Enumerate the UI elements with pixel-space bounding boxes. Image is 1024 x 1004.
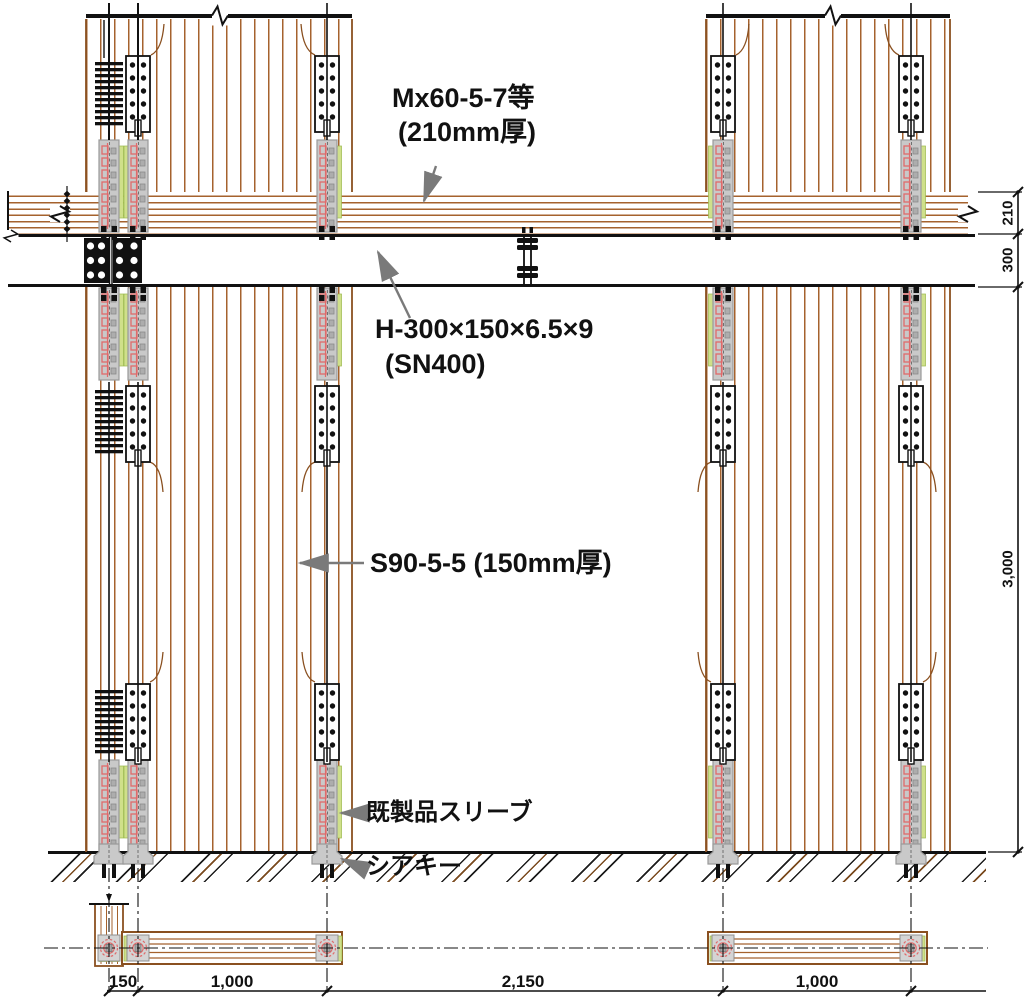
right-dimension-line <box>978 187 1023 857</box>
plan-view <box>89 894 927 966</box>
prefab-sleeves <box>99 140 921 852</box>
beam-through-bolts <box>517 227 538 286</box>
dim-right-210: 210 <box>1000 200 1017 225</box>
dim-right-300: 300 <box>1000 247 1017 272</box>
sleeve-label: 既製品スリーブ <box>366 800 533 826</box>
dim-bottom-150: 150 <box>109 972 137 992</box>
shear-key-label: シアキー <box>366 854 462 880</box>
beam-label-line1: H-300×150×6.5×9 <box>375 315 593 345</box>
connector-routing-arcs <box>150 24 936 682</box>
dim-right-3000: 3,000 <box>1000 550 1017 588</box>
drawing-linework <box>0 0 1024 1004</box>
beam-label-line2: (SN400) <box>385 350 486 380</box>
wall-panel-label: S90-5-5 (150mm厚) <box>370 549 612 579</box>
floor-panel-label-line1: Mx60-5-7等 <box>392 84 535 114</box>
clt-joint-detail-drawing: Mx60-5-7等 (210mm厚) H-300×150×6.5×9 (SN40… <box>0 0 1024 1004</box>
beam-splice <box>84 236 142 285</box>
connector-plates <box>95 56 923 764</box>
anchor-nuts <box>101 226 919 301</box>
dim-bottom-1000-left: 1,000 <box>211 972 254 992</box>
dim-bottom-1000-right: 1,000 <box>796 972 839 992</box>
fastener-diamond-row <box>64 186 71 242</box>
floor-panel-label-line2: (210mm厚) <box>398 118 536 148</box>
dim-bottom-2150: 2,150 <box>502 972 545 992</box>
shear-keys <box>94 844 926 878</box>
